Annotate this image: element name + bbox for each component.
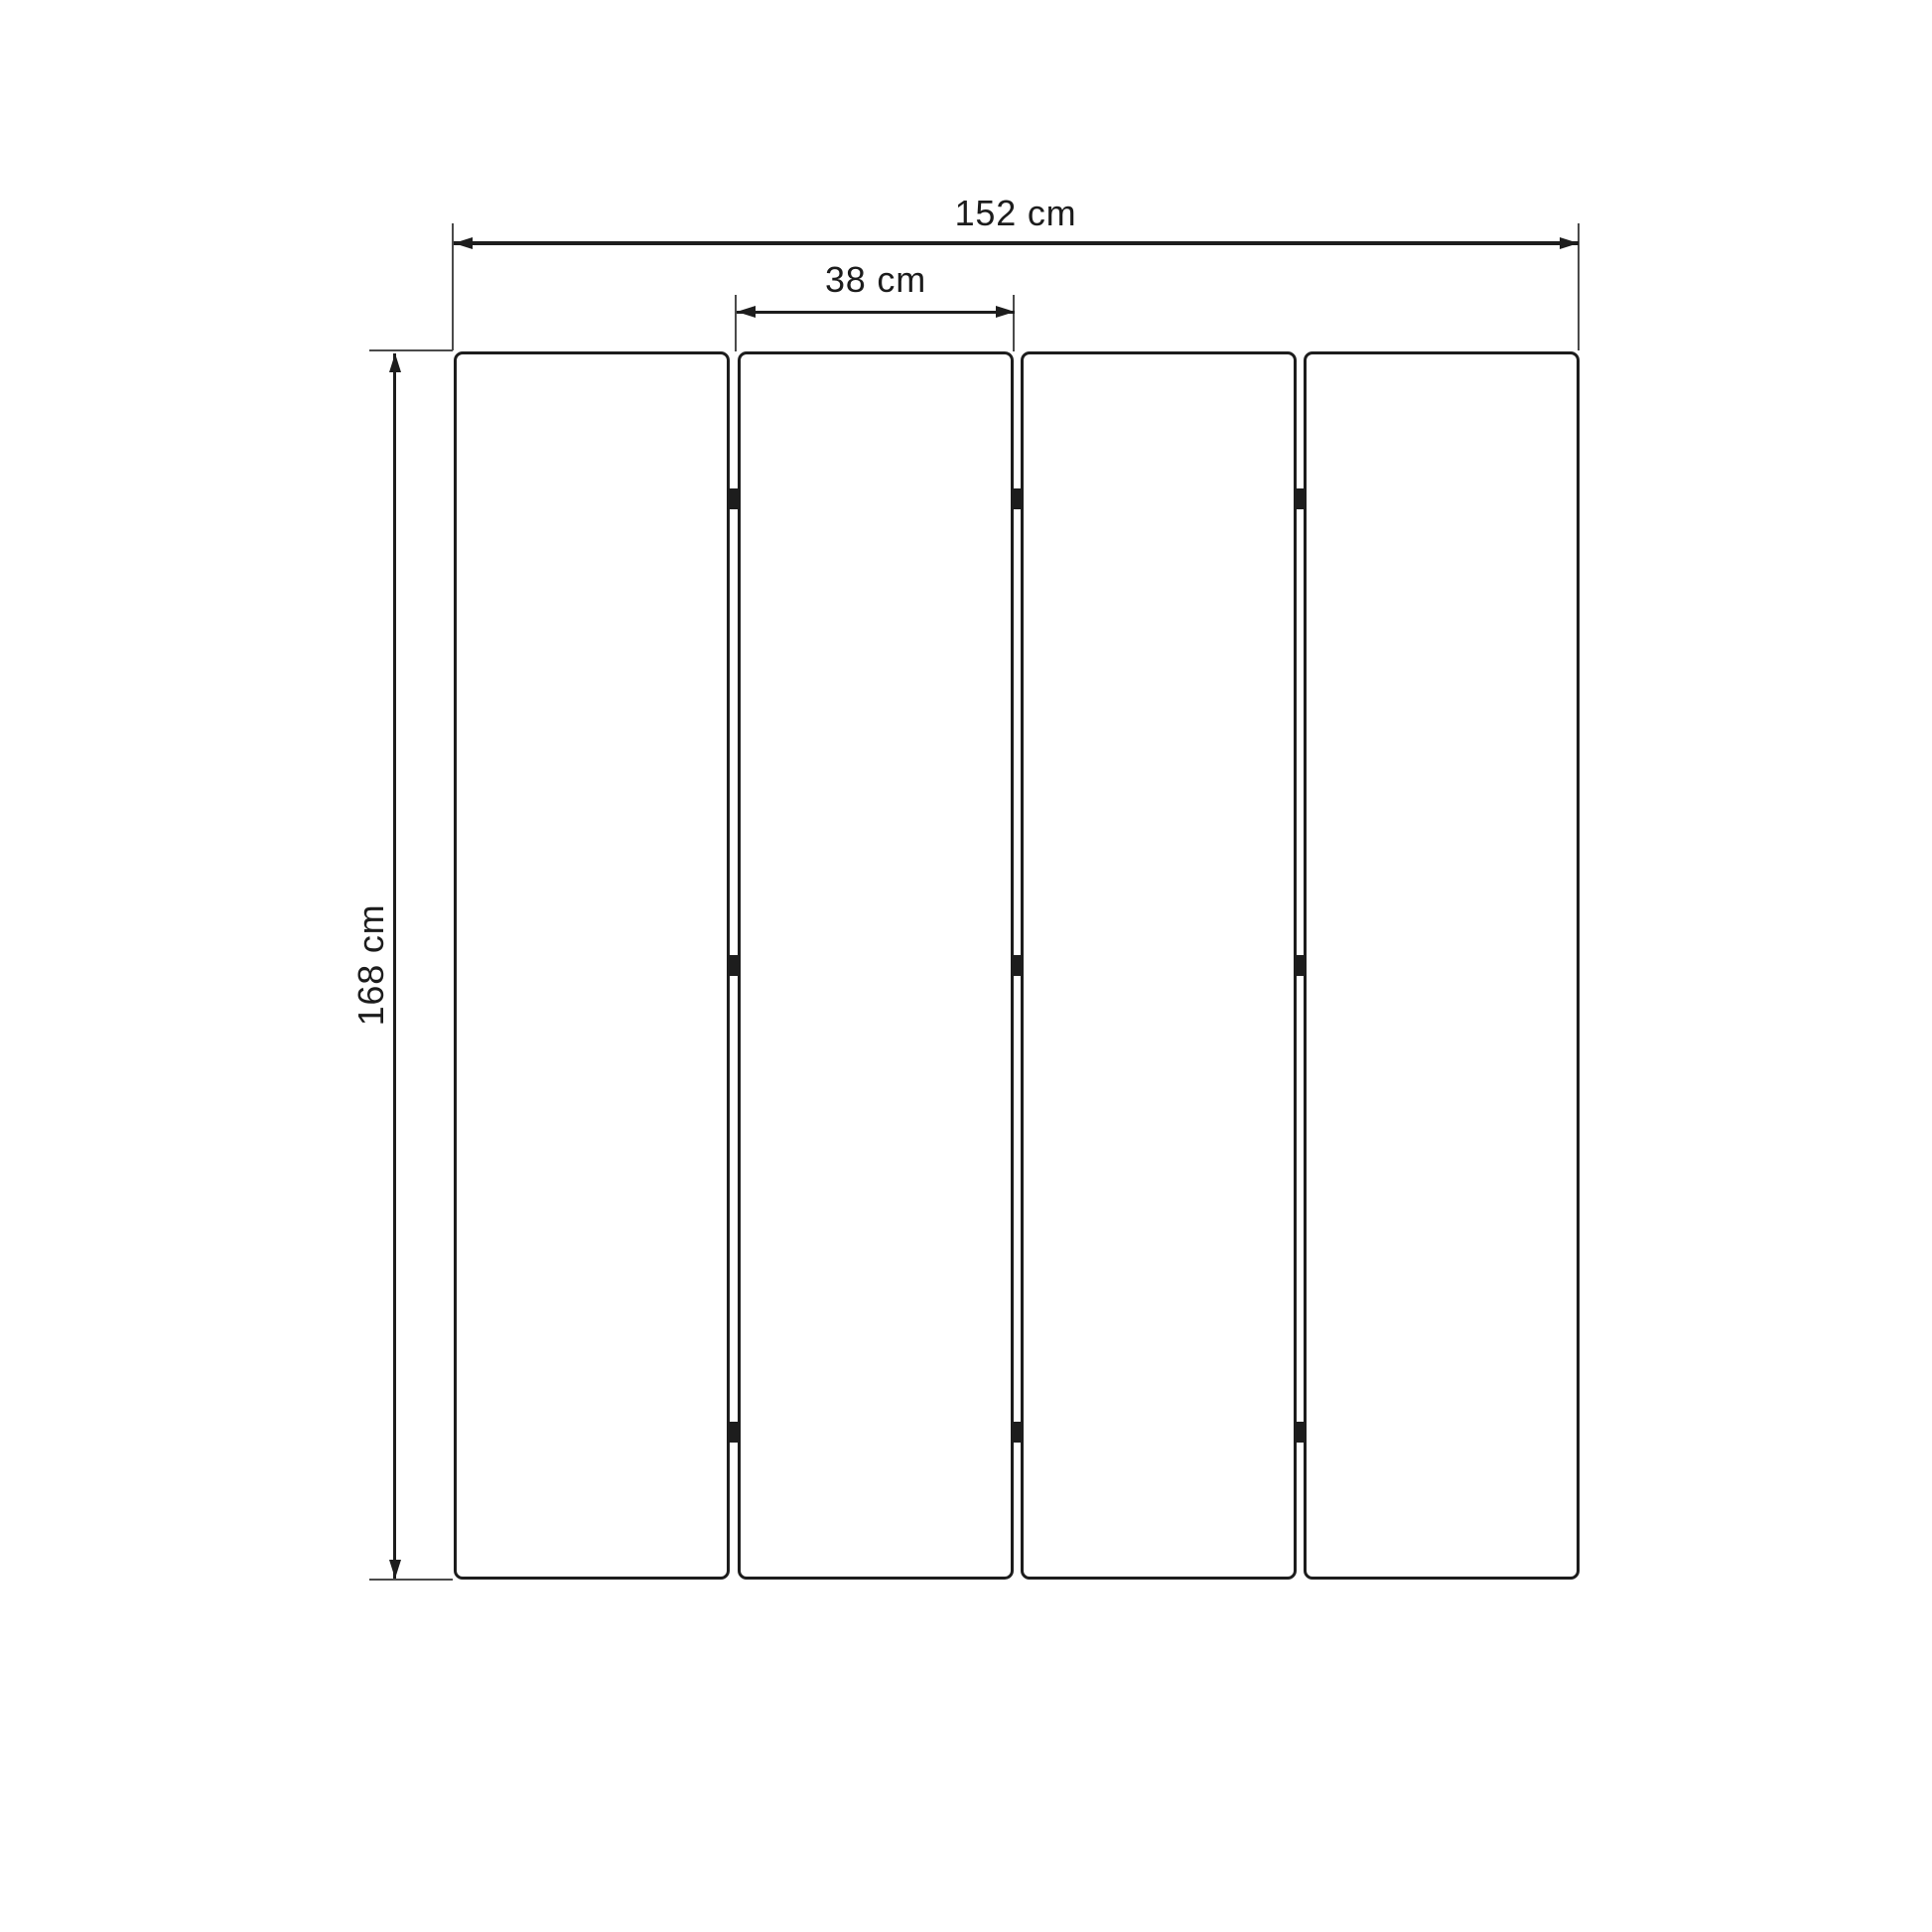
extension-line — [369, 349, 453, 351]
panel-1 — [454, 351, 730, 1580]
panel-4 — [1304, 351, 1580, 1580]
panel-3 — [1021, 351, 1297, 1580]
hinge-mark — [728, 955, 740, 976]
arrowhead-down-icon — [389, 1560, 401, 1579]
hinge-mark — [1294, 488, 1306, 509]
dimension-label-panel-width: 38 cm — [825, 262, 926, 298]
dimension-diagram: 152 cm 38 cm 168 cm — [0, 0, 1932, 1932]
dimension-line — [454, 241, 1579, 245]
panel-2 — [738, 351, 1014, 1580]
hinge-mark — [728, 1422, 740, 1443]
hinge-mark — [728, 488, 740, 509]
extension-line — [735, 295, 737, 351]
extension-line — [1013, 295, 1015, 351]
arrowhead-left-icon — [454, 237, 473, 249]
extension-line — [369, 1579, 453, 1581]
hinge-mark — [1294, 1422, 1306, 1443]
dimension-label-total-width: 152 cm — [955, 196, 1077, 231]
arrowhead-left-icon — [737, 306, 756, 318]
arrowhead-right-icon — [996, 306, 1015, 318]
dimension-line — [393, 353, 396, 1579]
arrowhead-up-icon — [389, 353, 401, 372]
dimension-line — [737, 311, 1015, 314]
hinge-mark — [1294, 955, 1306, 976]
arrowhead-right-icon — [1560, 237, 1579, 249]
dimension-label-height: 168 cm — [353, 904, 389, 1027]
hinge-mark — [1011, 488, 1023, 509]
hinge-mark — [1011, 955, 1023, 976]
hinge-mark — [1011, 1422, 1023, 1443]
